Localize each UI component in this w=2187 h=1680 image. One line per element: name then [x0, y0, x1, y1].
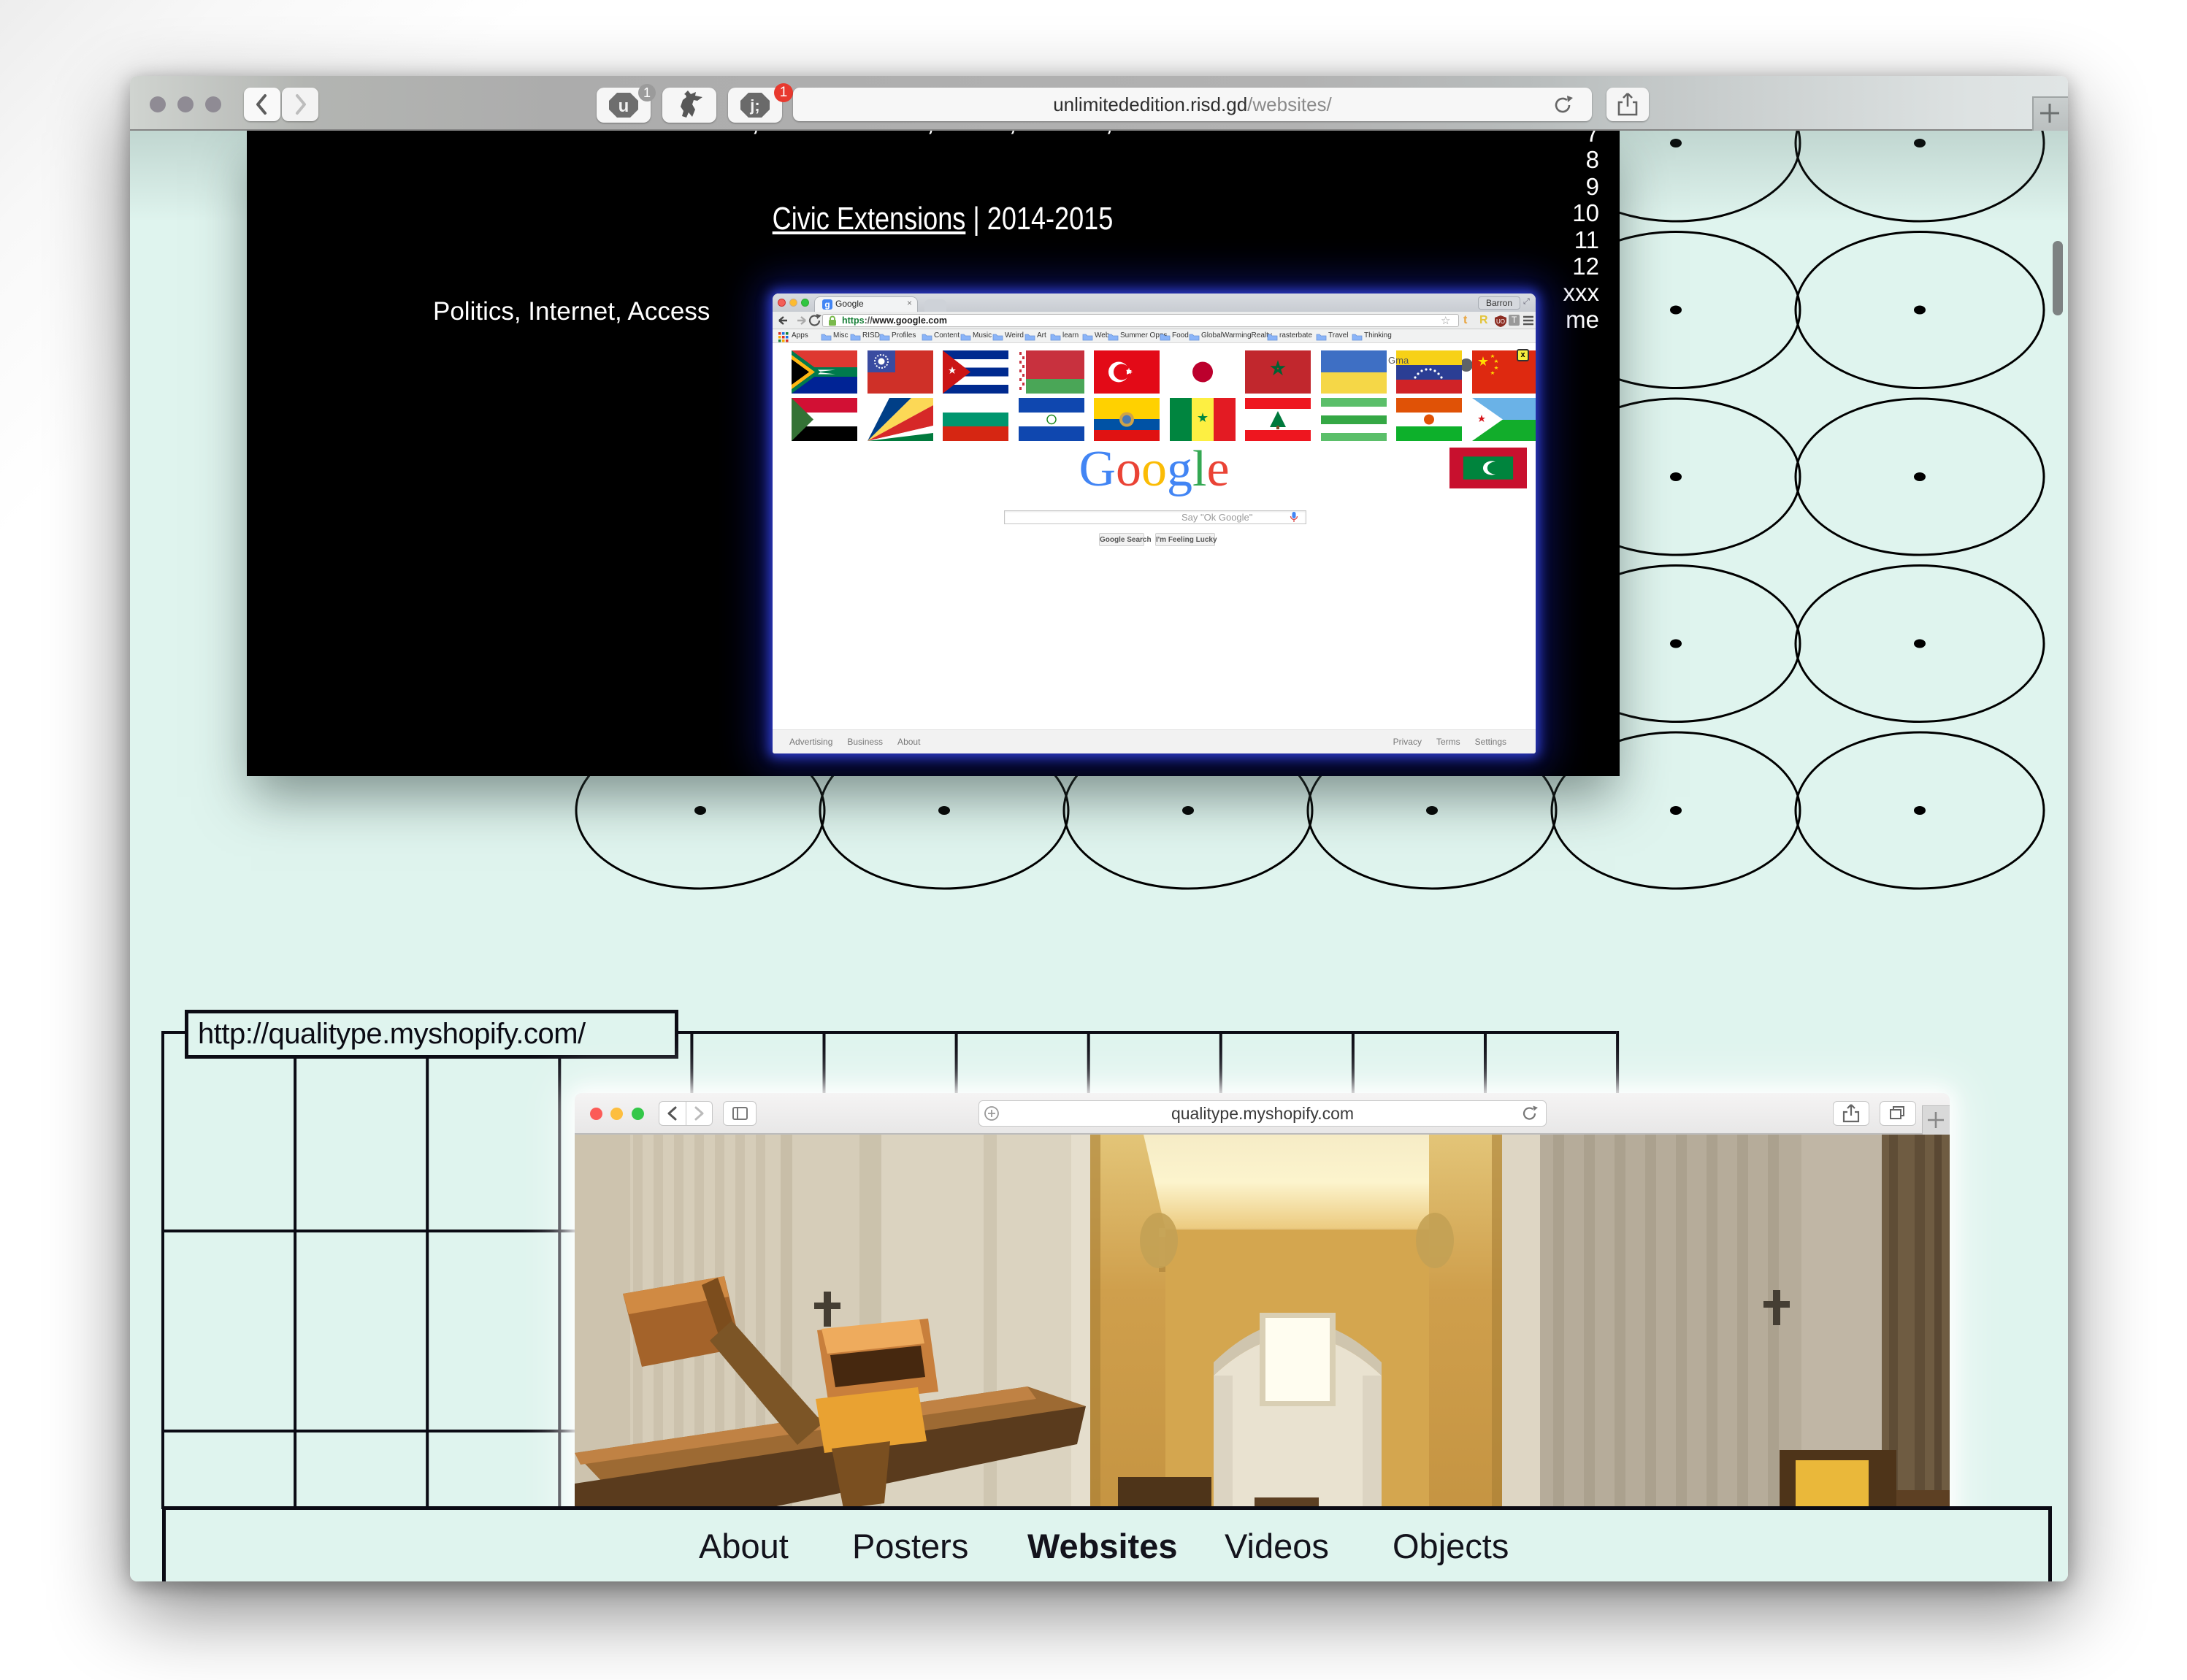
svg-text:u: u — [618, 96, 629, 116]
svg-text:j;: j; — [749, 96, 759, 115]
